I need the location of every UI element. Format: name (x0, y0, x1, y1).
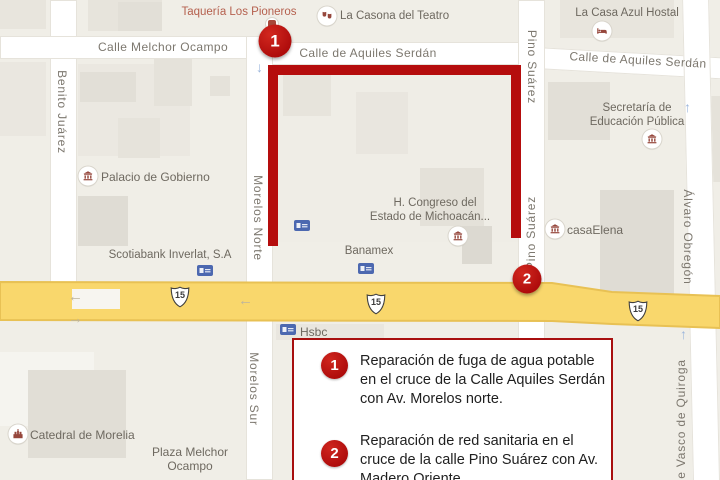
highway-route-number: 15 (366, 297, 386, 307)
legend-item-2-text: Reparación de red sanitaria en el cruce … (360, 432, 598, 480)
legend-badge-number: 2 (330, 445, 338, 462)
building (154, 58, 192, 106)
highway-15-shield: 15 (366, 293, 386, 315)
street-label-benito-juarez: Benito Juárez (55, 70, 69, 154)
building (118, 2, 162, 31)
legend-item-1-text: Reparación de fuga de agua potable en el… (360, 352, 605, 409)
building (118, 118, 160, 158)
map-screenshot: 15 15 15 ← ← → ↓ ↑ ↑ Calle Melchor Ocamp… (0, 0, 720, 480)
poi-label-scotiabank[interactable]: Scotiabank Inverlat, S.A (109, 249, 232, 261)
marker-number: 1 (270, 31, 279, 51)
street-label-alvaro-obregon: Álvaro Obregón (681, 189, 695, 284)
legend-badge-2: 2 (321, 440, 348, 467)
building (80, 72, 136, 102)
institution-icon[interactable] (546, 220, 565, 239)
poi-label-la-casona-del-teatro[interactable]: La Casona del Teatro (340, 10, 449, 22)
street-band-morelos-norte (246, 36, 273, 302)
street-label-morelos-norte: Morelos Norte (251, 175, 265, 261)
street-label-aquiles-serdan-west: Calle de Aquiles Serdán (299, 46, 436, 60)
street-label-pino-suarez-south: Pino Suárez (524, 196, 538, 270)
institution-icon[interactable] (79, 167, 98, 186)
poi-label-banamex[interactable]: Banamex (345, 245, 394, 257)
legend-panel: 1 Reparación de fuga de agua potable en … (292, 338, 613, 480)
building (78, 196, 128, 246)
street-label-morelos-sur: Morelos Sur (247, 352, 261, 426)
building (210, 76, 230, 96)
poi-label-plaza-line2[interactable]: Ocampo (167, 459, 212, 473)
poi-label-hsbc[interactable]: Hsbc (300, 325, 327, 339)
building (560, 0, 674, 38)
one-way-arrow-up-icon: ↑ (680, 327, 687, 341)
poi-label-secretaria-line2[interactable]: Educación Pública (590, 116, 685, 128)
highway-15-shield: 15 (628, 300, 648, 322)
building (28, 370, 126, 458)
one-way-arrow-up-icon: ↑ (684, 100, 691, 114)
poi-label-catedral-de-morelia[interactable]: Catedral de Morelia (30, 428, 135, 442)
one-way-arrow-down-icon: ↓ (256, 60, 263, 74)
atm-icon[interactable] (197, 263, 213, 281)
poi-label-casaelena[interactable]: casaElena (567, 223, 623, 237)
poi-label-taqueria-los-pioneros[interactable]: Taquería Los Pioneros (181, 6, 296, 18)
traffic-arrow-left-icon: ← (68, 289, 83, 304)
legend-badge-1: 1 (321, 352, 348, 379)
building (356, 92, 408, 154)
bed-icon[interactable] (593, 22, 612, 41)
street-label-vasco-de-quiroga: e Vasco de Quiroga (674, 359, 688, 479)
legend-badge-number: 1 (330, 357, 338, 374)
atm-icon[interactable] (358, 261, 374, 279)
building (548, 82, 610, 140)
theater-icon[interactable] (318, 7, 337, 26)
poi-label-congreso-line2[interactable]: Estado de Michoacán... (370, 211, 490, 223)
poi-label-la-casa-azul-hostal[interactable]: La Casa Azul Hostal (575, 7, 679, 19)
marker-number: 2 (523, 271, 531, 288)
highway-route-number: 15 (628, 304, 648, 314)
street-label-melchor-ocampo: Calle Melchor Ocampo (98, 40, 228, 54)
building (600, 190, 674, 302)
institution-icon[interactable] (449, 227, 468, 246)
building (0, 62, 46, 136)
poi-label-plaza-line1[interactable]: Plaza Melchor (152, 445, 228, 459)
map-marker-2[interactable]: 2 (513, 265, 542, 294)
cathedral-icon[interactable] (9, 425, 28, 444)
map-marker-1[interactable]: 1 (259, 25, 292, 58)
poi-label-palacio-de-gobierno[interactable]: Palacio de Gobierno (101, 170, 210, 184)
traffic-arrow-left-icon: ← (238, 293, 253, 308)
highway-15-shield: 15 (170, 286, 190, 308)
atm-icon[interactable] (294, 218, 310, 236)
highway-route-number: 15 (170, 290, 190, 300)
institution-icon[interactable] (643, 130, 662, 149)
poi-label-congreso-line1[interactable]: H. Congreso del (393, 197, 476, 209)
building (0, 0, 46, 29)
traffic-arrow-right-icon: → (68, 311, 83, 326)
poi-label-secretaria-line1[interactable]: Secretaría de (602, 102, 671, 114)
street-label-pino-suarez-north: Pino Suárez (525, 30, 539, 104)
building (283, 74, 331, 116)
